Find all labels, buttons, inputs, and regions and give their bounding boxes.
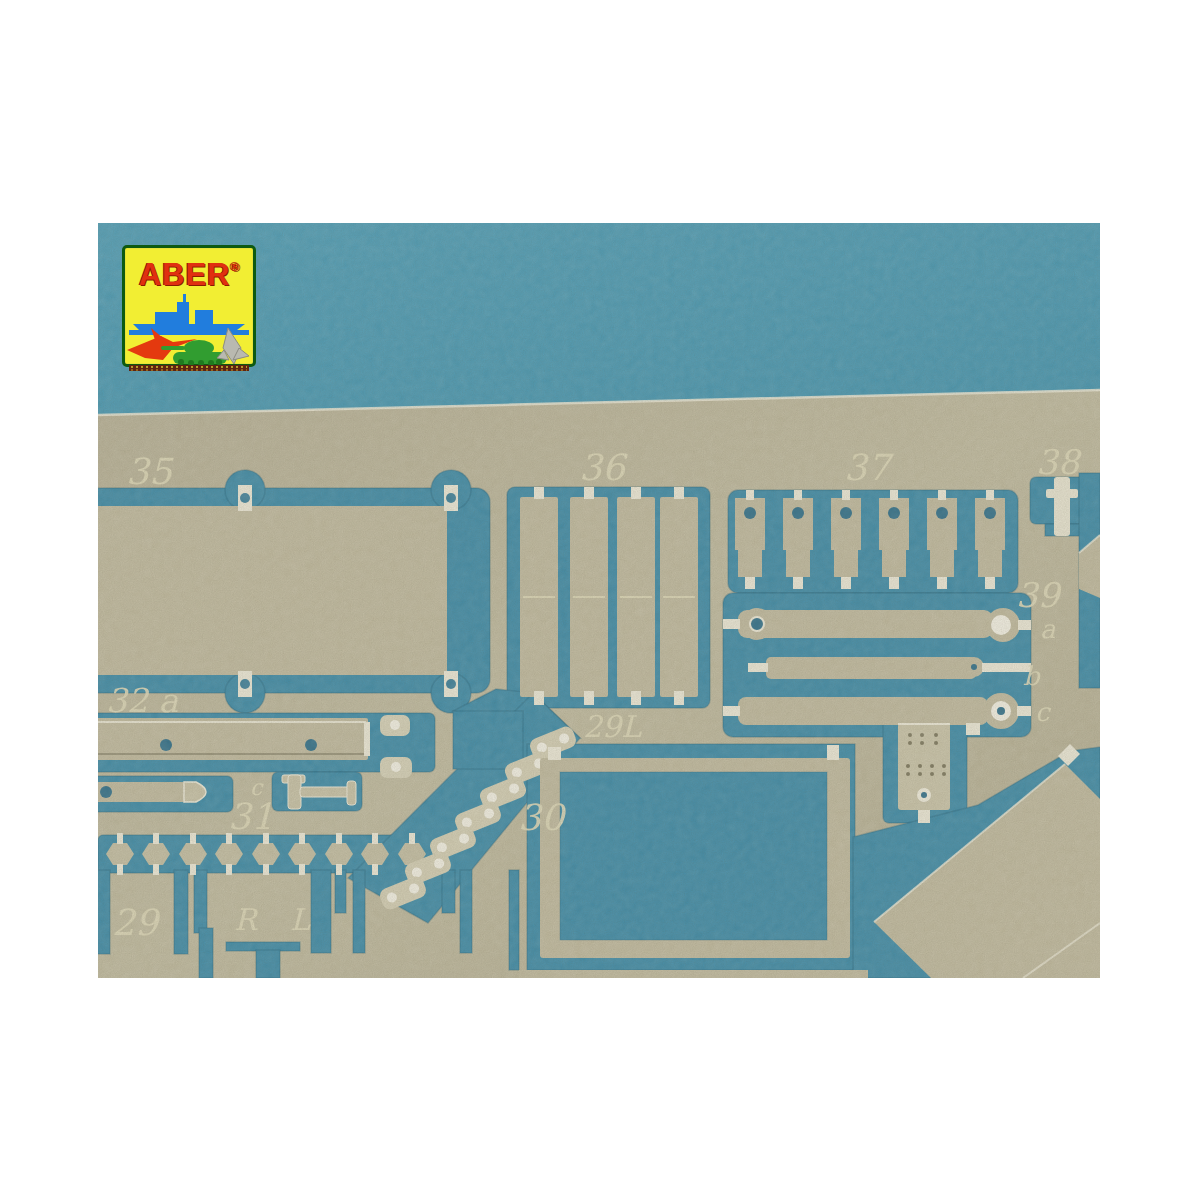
battleship-icon: [129, 294, 249, 335]
logo-brand-text: ABER®: [125, 252, 253, 290]
product-photo: 35 36 37 38 39 a b c 32 a 31 c 30 29L 29…: [98, 223, 1100, 978]
tank-track-icon: [129, 365, 249, 371]
logo-graphic: [125, 290, 253, 372]
registered-trademark-symbol: ®: [231, 260, 240, 274]
logo-wordmark: ABER: [139, 257, 231, 292]
aber-logo: ABER®: [122, 245, 256, 367]
page-background: 35 36 37 38 39 a b c 32 a 31 c 30 29L 29…: [0, 0, 1200, 1200]
